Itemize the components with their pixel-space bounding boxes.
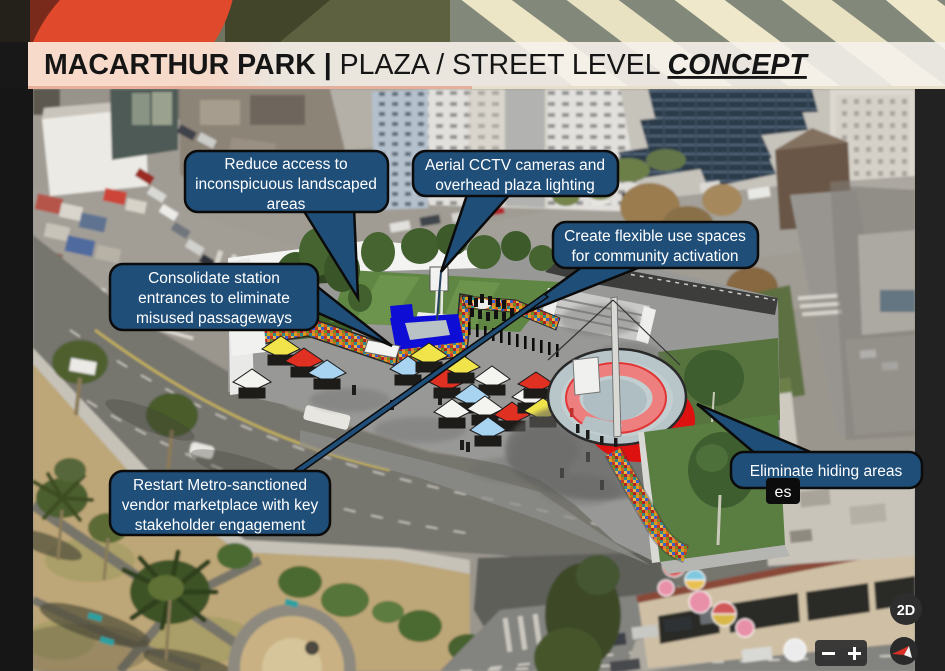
svg-text:vendor marketplace with key: vendor marketplace with key: [122, 497, 319, 514]
svg-text:inconspicuous landscaped: inconspicuous landscaped: [195, 176, 377, 193]
svg-text:areas: areas: [267, 196, 306, 213]
svg-text:overhead plaza lighting: overhead plaza lighting: [435, 177, 594, 194]
svg-text:MACARTHUR PARK | PLAZA / STREE: MACARTHUR PARK | PLAZA / STREET LEVEL CO…: [44, 49, 809, 81]
svg-text:Aerial CCTV cameras and: Aerial CCTV cameras and: [425, 157, 605, 174]
svg-text:misused passageways: misused passageways: [136, 310, 292, 327]
svg-text:stakeholder engagement: stakeholder engagement: [135, 517, 306, 534]
svg-text:entrances to eliminate: entrances to eliminate: [138, 290, 290, 307]
svg-text:Create flexible use spaces: Create flexible use spaces: [564, 228, 746, 245]
svg-text:for community activation: for community activation: [571, 248, 738, 265]
svg-text:Reduce access to: Reduce access to: [224, 156, 347, 173]
svg-text:2D: 2D: [897, 603, 916, 619]
svg-text:Consolidate station: Consolidate station: [148, 270, 280, 287]
svg-text:es: es: [775, 484, 792, 501]
svg-text:Eliminate hiding areas: Eliminate hiding areas: [750, 463, 903, 480]
svg-text:Restart Metro-sanctioned: Restart Metro-sanctioned: [133, 477, 307, 494]
